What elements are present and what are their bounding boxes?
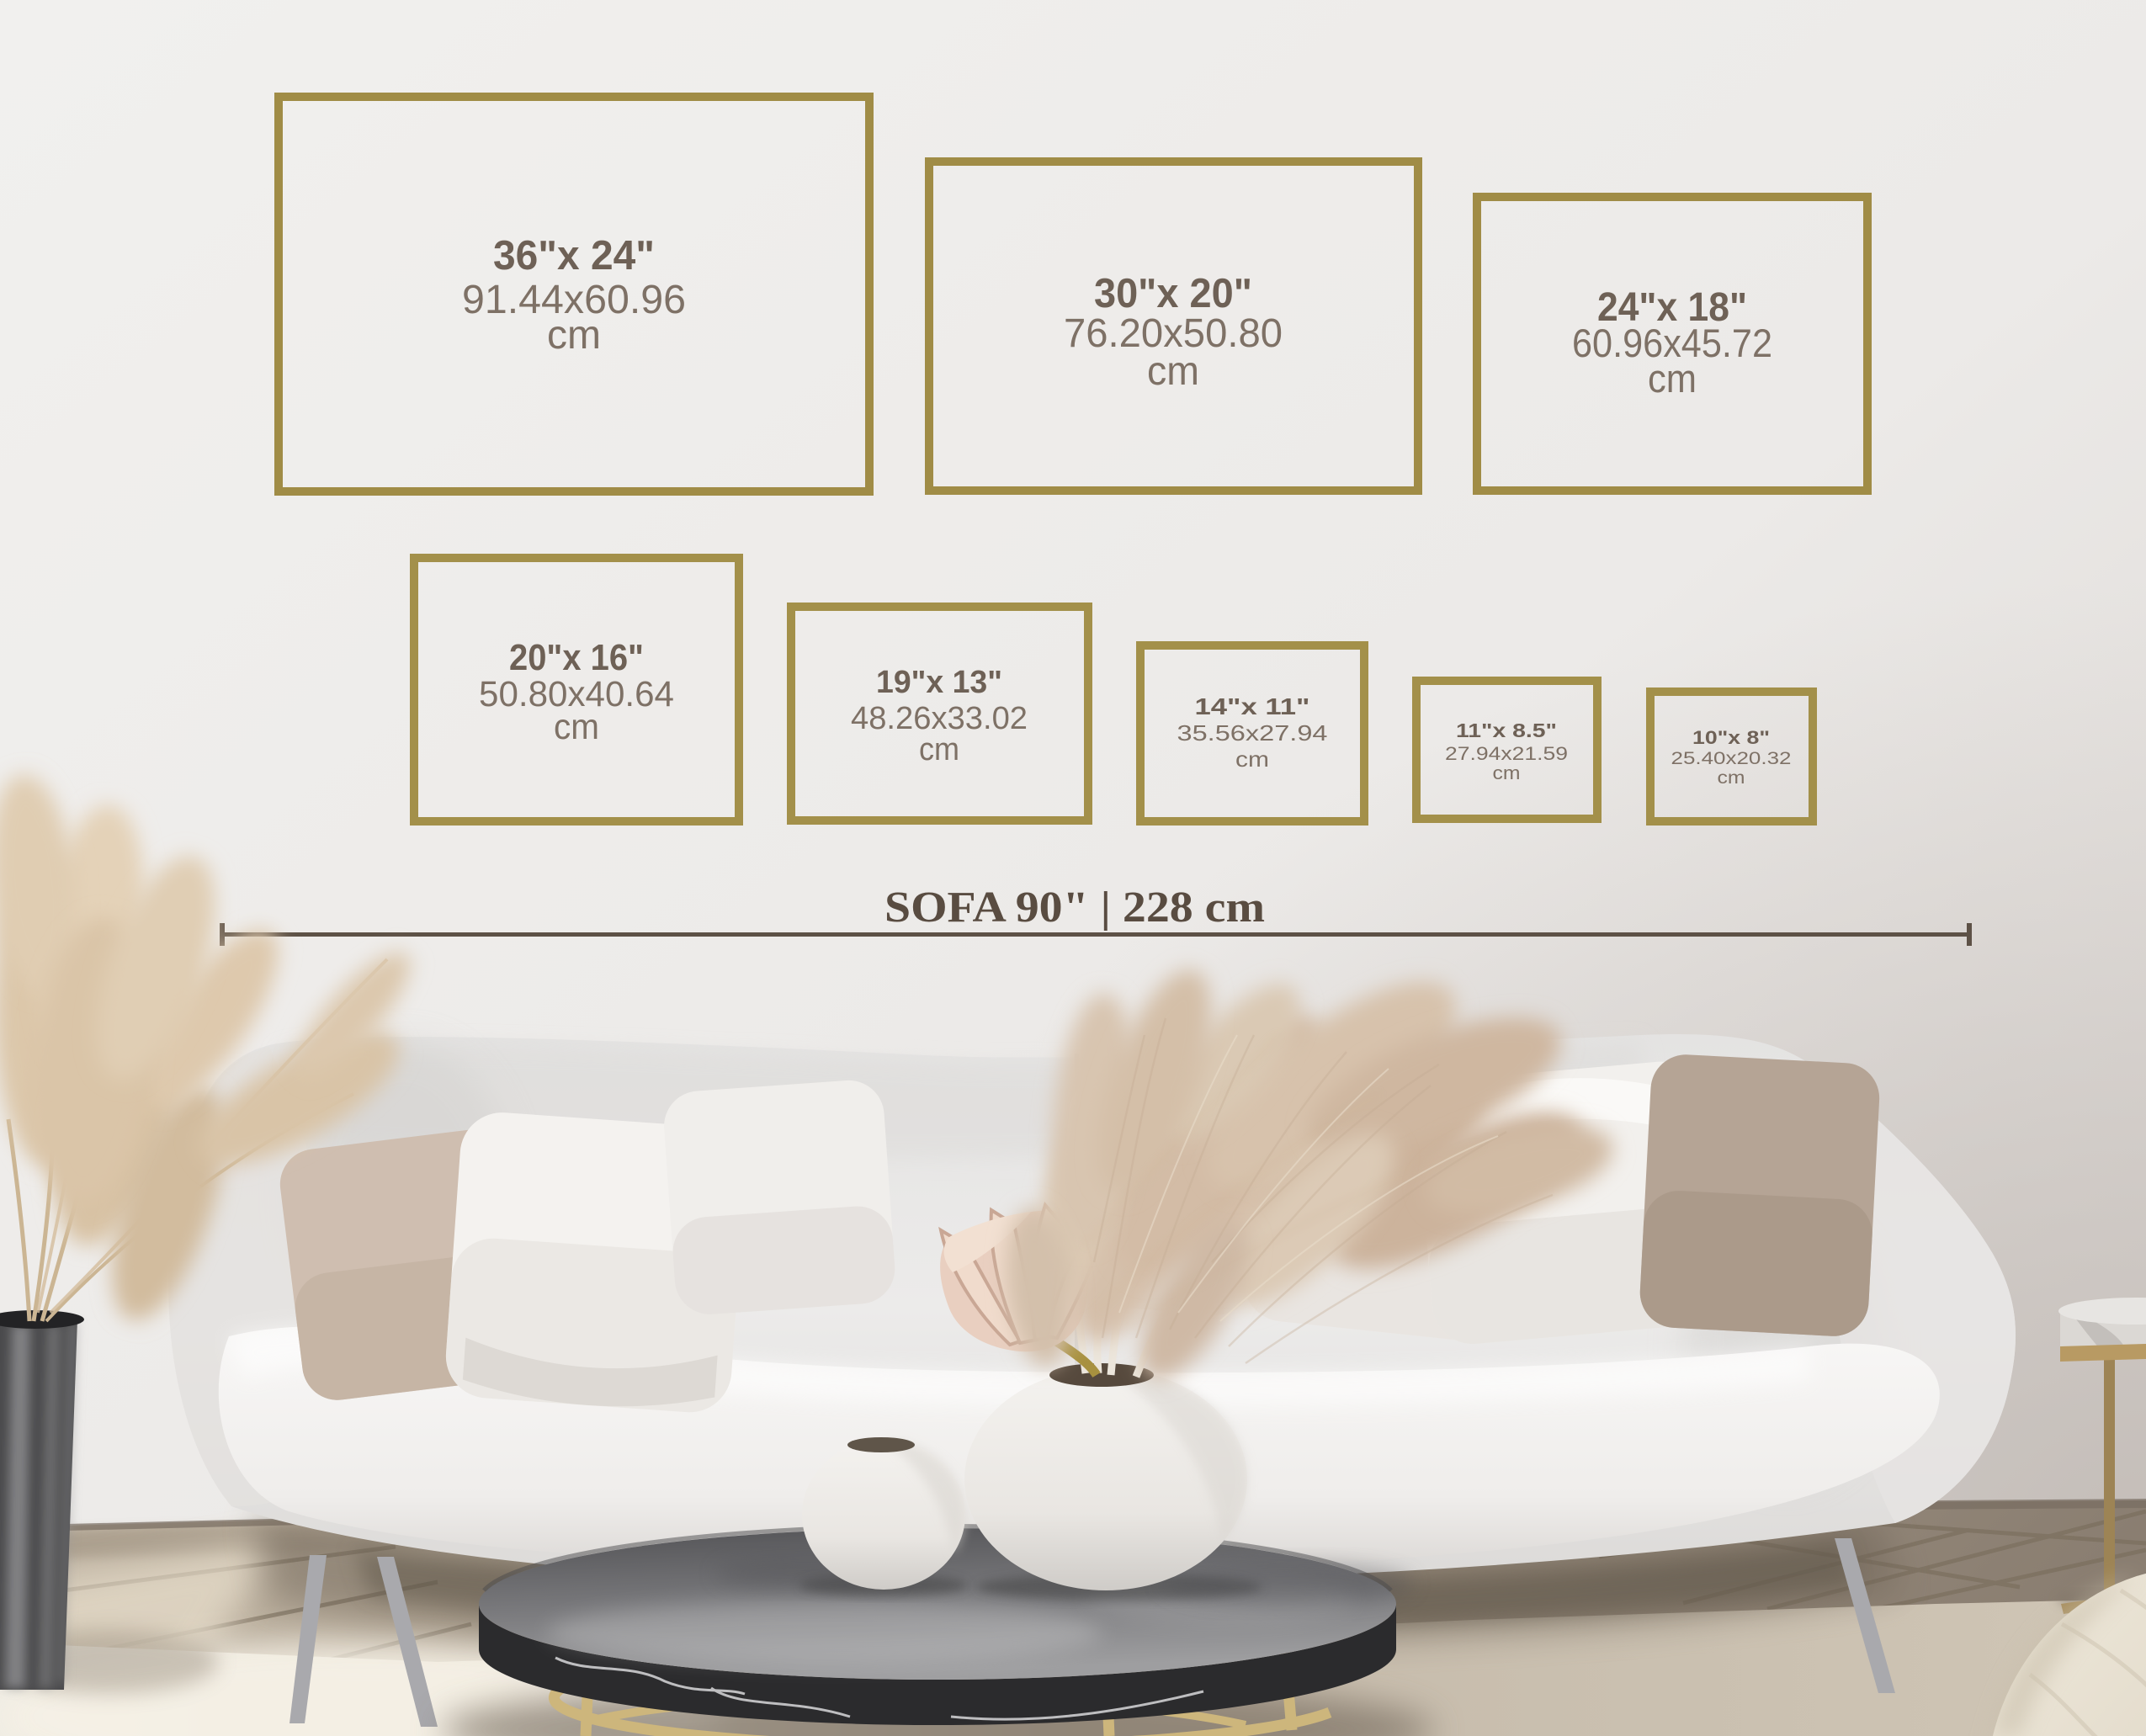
svg-text:11"x 8.5": 11"x 8.5" [1456,719,1557,741]
svg-text:27.94x21.59: 27.94x21.59 [1445,743,1568,764]
svg-text:30"x 20": 30"x 20" [1094,271,1252,316]
svg-text:36"x 24": 36"x 24" [493,233,655,279]
svg-text:20"x 16": 20"x 16" [509,637,644,678]
svg-text:cm: cm [919,732,959,767]
svg-text:SOFA 90" | 228 cm: SOFA 90" | 228 cm [884,884,1265,932]
svg-text:cm: cm [554,707,599,747]
svg-text:cm: cm [1648,356,1697,401]
svg-text:35.56x27.94: 35.56x27.94 [1177,720,1328,746]
svg-text:cm: cm [1235,746,1269,772]
svg-text:25.40x20.32: 25.40x20.32 [1671,749,1792,768]
svg-text:10"x 8": 10"x 8" [1692,727,1770,748]
svg-text:cm: cm [547,313,601,358]
svg-text:cm: cm [1718,768,1745,788]
svg-text:19"x 13": 19"x 13" [876,665,1002,700]
svg-text:cm: cm [1147,349,1199,394]
svg-text:48.26x33.02: 48.26x33.02 [851,701,1028,736]
svg-text:cm: cm [1493,762,1521,783]
svg-text:14"x 11": 14"x 11" [1195,693,1310,719]
